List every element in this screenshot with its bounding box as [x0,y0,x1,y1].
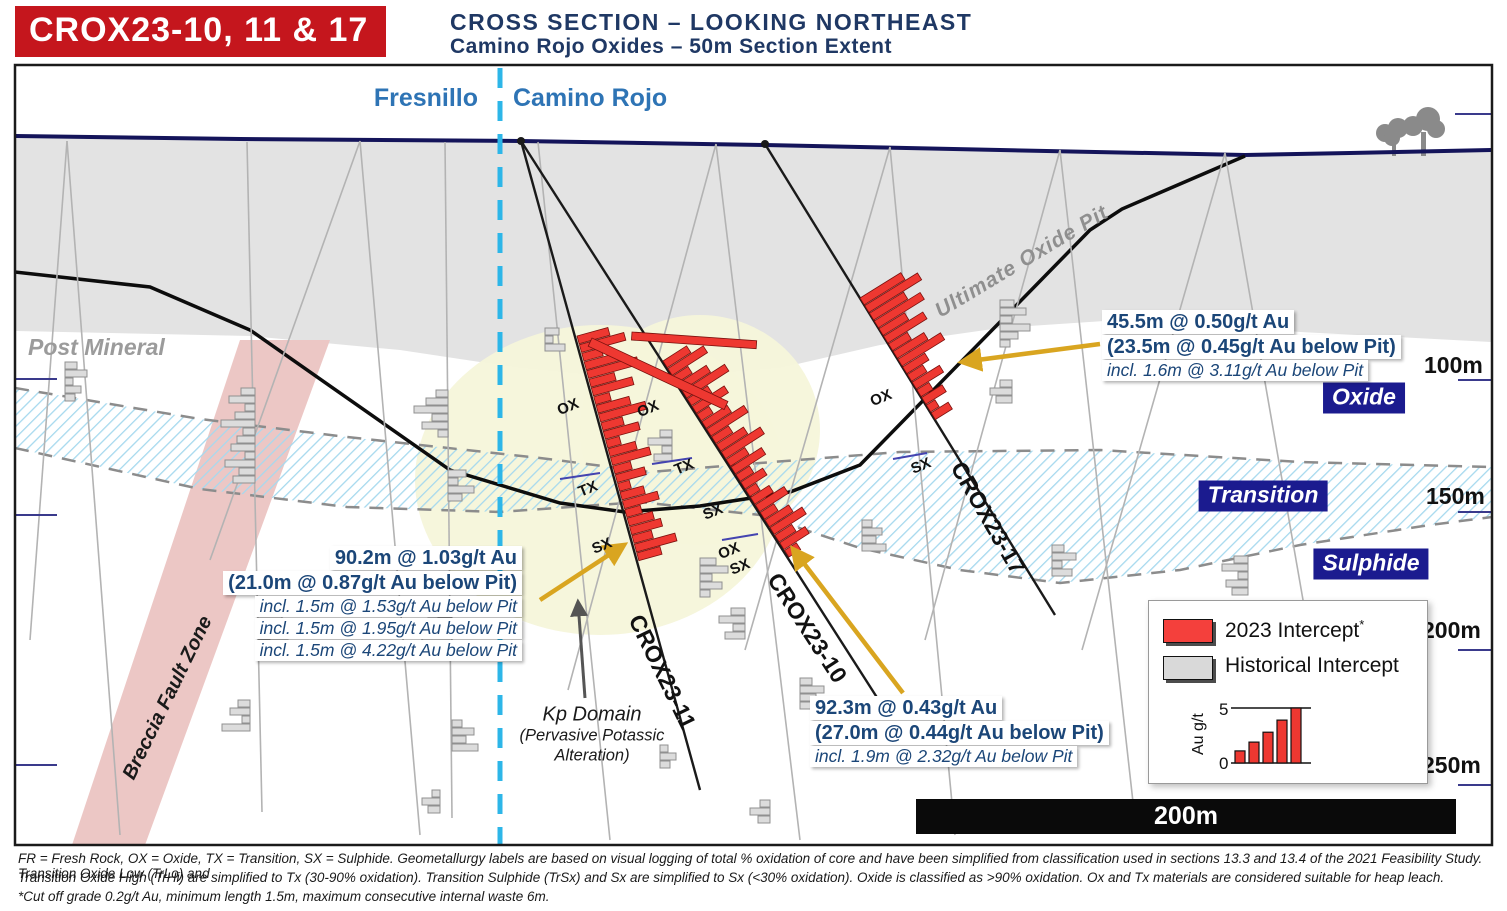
annotation-line: (23.5m @ 0.45g/t Au below Pit) [1102,335,1401,359]
section-title: CROSS SECTION – LOOKING NORTHEAST [450,9,972,36]
annotation-line: (27.0m @ 0.44g/t Au below Pit) [810,721,1109,745]
legend-chart-ylabel: Au g/t [1190,713,1207,755]
footnote-line-3: *Cut off grade 0.2g/t Au, minimum length… [18,889,549,904]
annotation-line: incl. 1.5m @ 1.53g/t Au below Pit [255,596,522,617]
kp-domain-label: Kp Domain [520,704,665,727]
kp-domain-sub2: Alteration) [520,747,665,767]
annotation-line: incl. 1.5m @ 4.22g/t Au below Pit [255,640,522,661]
scale-bar: 200m [916,799,1456,834]
annotation-line: incl. 1.9m @ 2.32g/t Au below Pit [810,746,1077,767]
legend-label-2023: 2023 Intercept* [1225,617,1364,643]
zone-label-oxide: Oxide [1323,383,1405,414]
legend-swatch-historical [1163,656,1213,680]
zone-label-sulphide: Sulphide [1313,549,1428,580]
legend-chart-ymin: 0 [1219,754,1228,773]
legend-label-2023-asterisk: * [1359,617,1364,632]
depth-label-250m: 250m [1422,752,1481,779]
annotation-crox23-11: 90.2m @ 1.03g/t Au (21.0m @ 0.87g/t Au b… [223,546,522,662]
cross-section-figure: CROX23-10, 11 & 17 CROSS SECTION – LOOKI… [0,0,1507,911]
collar-crox23-10-11 [517,137,525,145]
kp-domain-sub1: (Pervasive Potassic [520,727,665,747]
legend-label-2023-text: 2023 Intercept [1225,619,1359,642]
legend: 2023 Intercept* Historical Intercept Au … [1148,600,1428,784]
legend-label-historical: Historical Intercept [1225,654,1399,678]
annotation-line: (21.0m @ 0.87g/t Au below Pit) [223,571,522,595]
annotation-line: 90.2m @ 1.03g/t Au [330,546,522,570]
legend-chart-bars [1235,708,1301,763]
depth-label-100m: 100m [1424,352,1483,379]
section-subtitle: Camino Rojo Oxides – 50m Section Extent [450,35,892,59]
depth-label-200m: 200m [1422,617,1481,644]
property-label-camino-rojo: Camino Rojo [513,84,667,113]
annotation-crox23-17: 45.5m @ 0.50g/t Au (23.5m @ 0.45g/t Au b… [1102,310,1401,382]
annotation-line: 92.3m @ 0.43g/t Au [810,696,1002,720]
legend-swatch-2023 [1163,619,1213,643]
hole-ids-banner: CROX23-10, 11 & 17 [15,6,386,57]
collar-crox23-17 [761,140,769,148]
post-mineral-label: Post Mineral [28,334,165,361]
footnote-line-2: Transition Oxide High (TrHi) are simplif… [18,870,1444,885]
annotation-line: incl. 1.6m @ 3.11g/t Au below Pit [1102,360,1368,381]
legend-chart-ymax: 5 [1219,700,1228,719]
legend-grade-scale-chart: Au g/t 5 0 [1189,693,1389,781]
depth-label-150m: 150m [1426,483,1485,510]
annotation-line: 45.5m @ 0.50g/t Au [1102,310,1294,334]
annotation-line: incl. 1.5m @ 1.95g/t Au below Pit [255,618,522,639]
property-label-fresnillo: Fresnillo [330,84,478,113]
zone-label-transition: Transition [1199,481,1328,512]
annotation-crox23-10: 92.3m @ 0.43g/t Au (27.0m @ 0.44g/t Au b… [810,696,1109,768]
